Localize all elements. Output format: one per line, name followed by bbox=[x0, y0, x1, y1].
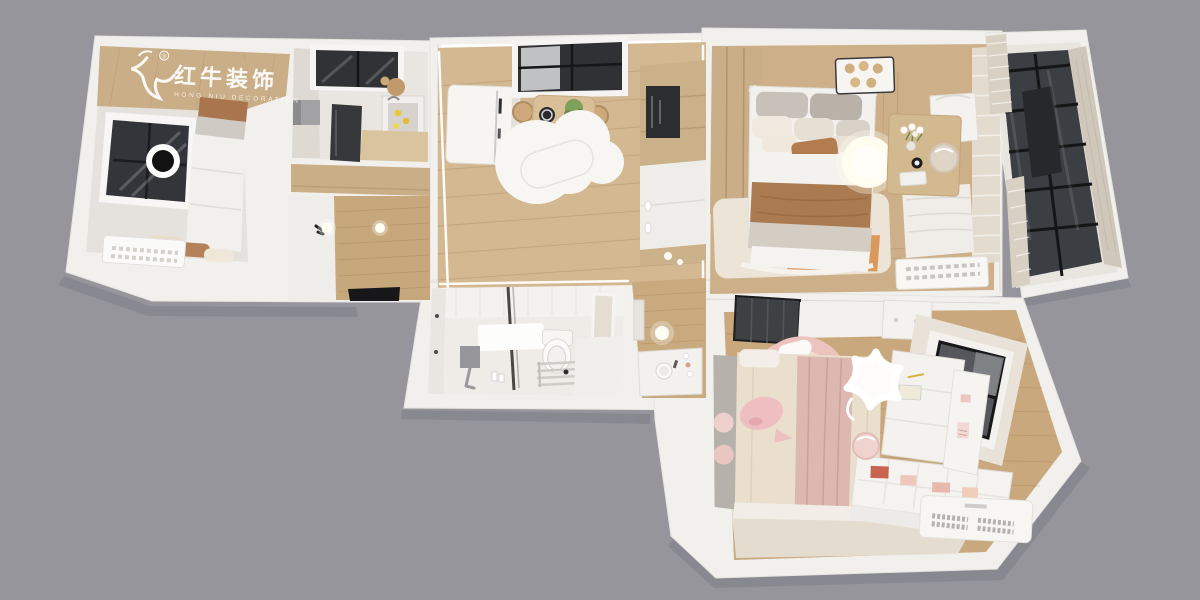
kitchen-wood-counter bbox=[360, 130, 428, 162]
cutting-board-small-icon bbox=[381, 77, 390, 86]
kids-chair bbox=[853, 433, 879, 459]
square-ceiling-lamp-icon bbox=[835, 57, 894, 94]
vanity-basin bbox=[638, 348, 702, 396]
room-master-bedroom bbox=[710, 44, 1000, 294]
room-entry-hall bbox=[288, 164, 430, 301]
notebook bbox=[899, 385, 922, 400]
bathroom-step bbox=[574, 336, 624, 396]
shower-niche bbox=[460, 346, 480, 368]
living-cabinet bbox=[640, 60, 706, 266]
door-hinge-icon bbox=[435, 314, 439, 318]
room-kitchen bbox=[292, 44, 428, 162]
kids-ac-unit bbox=[919, 495, 1033, 543]
cutting-board-icon bbox=[387, 78, 405, 96]
room-bathroom bbox=[428, 286, 624, 396]
living-window bbox=[512, 36, 628, 98]
kids-wardrobe bbox=[734, 296, 800, 344]
kitchen-dark-appliance bbox=[330, 104, 362, 162]
bath-mat bbox=[478, 323, 545, 351]
entry-doorway-gap bbox=[348, 287, 400, 301]
vanity-desk bbox=[887, 114, 962, 196]
wall-niche bbox=[634, 300, 644, 340]
book bbox=[900, 171, 927, 186]
room-kids-bedroom bbox=[709, 296, 1062, 560]
door-hinge-icon bbox=[434, 350, 438, 354]
entry-shoe-cabinet bbox=[291, 164, 430, 196]
room-vanity-corridor bbox=[632, 278, 706, 398]
toilet-icon bbox=[541, 330, 572, 374]
entry-door-wall bbox=[288, 194, 336, 300]
cabinet-dark-niche bbox=[646, 86, 680, 138]
master-radiator bbox=[896, 256, 989, 289]
bedroom-radiator bbox=[102, 235, 186, 268]
room-living-dining bbox=[438, 36, 706, 292]
ceiling-lamp-round-icon bbox=[146, 144, 180, 178]
floorplan-render: ® 红牛装饰 HONG NIU DECORATION bbox=[0, 0, 1200, 600]
